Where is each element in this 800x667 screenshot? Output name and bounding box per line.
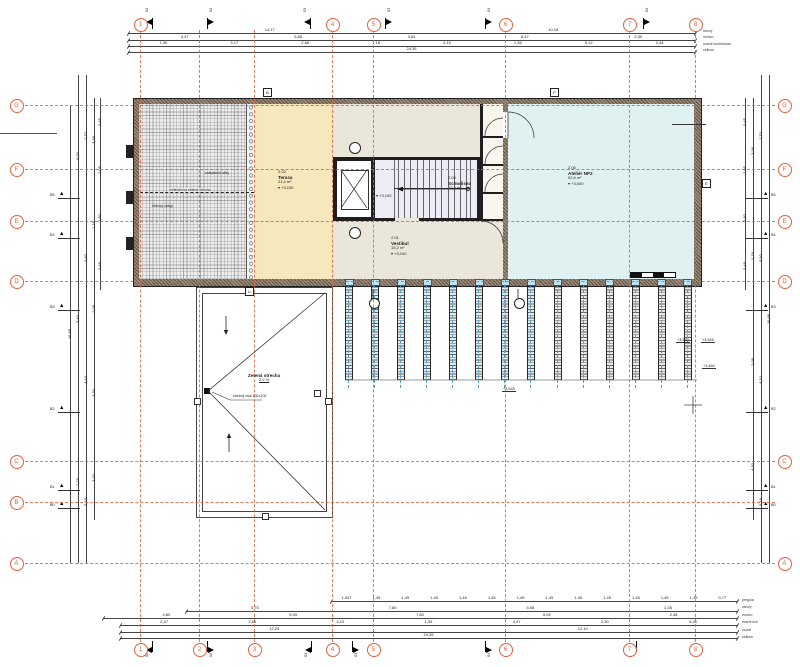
section-flag-pole-top-0 bbox=[152, 18, 153, 29]
wall-mark-b: b bbox=[245, 287, 254, 296]
grid-bubble-left-C: C bbox=[10, 455, 24, 469]
grid-bubble-left-B: B bbox=[10, 496, 24, 510]
section-flag-pennant bbox=[304, 19, 310, 25]
b-marker-label-left: B2 bbox=[50, 407, 55, 411]
dim-value: 7,26 bbox=[76, 478, 80, 486]
grid-line-column-4 bbox=[332, 30, 333, 652]
section-flag-label: S4 bbox=[487, 653, 491, 657]
b-marker-tri-right: ▲ bbox=[763, 405, 768, 411]
dim-value: 0,48 bbox=[98, 262, 102, 270]
grid-bubble-bottom-4: 4 bbox=[326, 643, 340, 657]
dim-legend-top-1: murivo bbox=[703, 36, 714, 40]
hatch-label-3: štrkový zásyp bbox=[152, 204, 173, 208]
grid-line-row-G bbox=[25, 105, 775, 106]
dim-value: 2,95 bbox=[743, 166, 747, 174]
b-marker-label-left: B1 bbox=[50, 485, 55, 489]
dim-value: 5,90 bbox=[759, 254, 763, 262]
b-marker-label-right: B2 bbox=[771, 407, 776, 411]
pergola-axis-11 bbox=[635, 285, 636, 388]
flat-roof-inner bbox=[202, 293, 327, 512]
dim-value: 14,17 bbox=[265, 28, 275, 32]
dim-value: 4,47 bbox=[513, 620, 521, 624]
section-flag-pole-bottom-0 bbox=[152, 641, 153, 652]
section-flag-pole-bottom-2 bbox=[311, 641, 312, 652]
grid-bubble-left-G: G bbox=[10, 99, 24, 113]
roof-anchor-square-1 bbox=[325, 398, 332, 405]
window-tick-5 bbox=[475, 279, 484, 286]
facade-stub-1 bbox=[126, 145, 134, 158]
dim-value: 6,20 bbox=[76, 152, 80, 160]
grid-bubble-bottom-8: 8 bbox=[689, 643, 703, 657]
pergola-axis-10 bbox=[609, 285, 610, 388]
hatch-label-1: zateplenie átiky bbox=[205, 171, 229, 175]
pergola-strip-5 bbox=[475, 287, 483, 380]
pergola-axis-5 bbox=[478, 285, 479, 388]
stair-level-mark: ▾ +3,100 bbox=[376, 194, 391, 199]
grid-bubble-top-6: 6 bbox=[499, 18, 513, 32]
b-marker-label-right: B0 bbox=[771, 503, 776, 507]
grid-line-column-5 bbox=[373, 30, 374, 652]
b-marker-label-right: B1 bbox=[771, 485, 776, 489]
window-tick-10 bbox=[605, 279, 614, 286]
pergola-axis-12 bbox=[661, 285, 662, 388]
dim-value: 6,47 bbox=[521, 35, 529, 39]
dim-value: 4,10 bbox=[443, 41, 451, 45]
window-tick-2 bbox=[397, 279, 406, 286]
detail-circle-top bbox=[349, 142, 361, 154]
grid-bubble-right-C: C bbox=[778, 455, 792, 469]
dim-value: 1,45 bbox=[661, 596, 669, 600]
dim-value: 4,10 bbox=[759, 376, 763, 384]
grid-bubble-left-E: E bbox=[10, 215, 24, 229]
dim-legend-bottom-5: celkom bbox=[742, 636, 753, 640]
dim-value: 2,47 bbox=[160, 620, 168, 624]
section-flag-label: S4 bbox=[645, 8, 649, 12]
room-label-roof: Zelená strecha 2,0 % bbox=[248, 373, 280, 383]
studio-room bbox=[508, 104, 694, 279]
downpipe-circle-1 bbox=[369, 298, 380, 309]
pergola-axis-9 bbox=[583, 285, 584, 388]
b-marker-line-right bbox=[746, 508, 768, 509]
spot-level-2: +3,460 bbox=[702, 364, 716, 369]
grid-line-row-F bbox=[25, 169, 775, 170]
dim-value: 1,45 bbox=[574, 596, 582, 600]
grid-bubble-left-F: F bbox=[10, 163, 24, 177]
downpipe-circle-2 bbox=[514, 298, 525, 309]
section-flag-pole-top-2 bbox=[310, 18, 311, 29]
b-marker-tri-left: ▲ bbox=[59, 303, 64, 309]
dim-value: 1,70 bbox=[759, 132, 763, 140]
spot-level-1: +3,545 bbox=[701, 338, 715, 343]
b-marker-tri-right: ▲ bbox=[763, 191, 768, 197]
b-marker-line-left bbox=[58, 310, 80, 311]
b-marker-line-left bbox=[58, 238, 80, 239]
grid-bubble-top-1: 1 bbox=[134, 18, 148, 32]
window-tick-12 bbox=[657, 279, 666, 286]
grid-bubble-bottom-5: 5 bbox=[367, 643, 381, 657]
room-label-terrace: 2.02 Terasa 21,4 m² ▾ +3,100 bbox=[278, 170, 293, 190]
section-flag-pennant bbox=[386, 19, 392, 25]
grid-line-row-B bbox=[25, 502, 775, 503]
dim-value: 1,45 bbox=[459, 596, 467, 600]
dim-chain-h-9 bbox=[120, 638, 737, 639]
dim-value: 4,30 bbox=[92, 389, 96, 397]
section-flag-label: S3 bbox=[354, 653, 358, 657]
roof-anchor-square-0 bbox=[194, 398, 201, 405]
grid-line-row-C bbox=[25, 461, 775, 462]
dim-value: 1,35 bbox=[425, 620, 433, 624]
dim-value: 0,45 bbox=[98, 118, 102, 126]
pergola-strip-3 bbox=[423, 287, 431, 380]
floor-plan-sheet: 2.02 Terasa 21,4 m² ▾ +3,100 2.04 Schodi… bbox=[0, 0, 800, 667]
dim-value: 3,17 bbox=[230, 41, 238, 45]
window-tick-0 bbox=[345, 279, 354, 286]
dim-value: 2,48 bbox=[670, 613, 678, 617]
b-marker-label-left: B0 bbox=[50, 503, 55, 507]
grid-bubble-bottom-6: 6 bbox=[499, 643, 513, 657]
dim-legend-top-0: otvory bbox=[703, 30, 713, 34]
dim-value: 1,45 bbox=[546, 596, 554, 600]
facade-stub-3 bbox=[126, 237, 134, 250]
grid-bubble-bottom-3: 3 bbox=[248, 643, 262, 657]
dim-value: 4,10 bbox=[84, 376, 88, 384]
dim-value: 5,05 bbox=[543, 613, 551, 617]
dim-value: 5,05 bbox=[289, 613, 297, 617]
pergola-axis-4 bbox=[452, 285, 453, 388]
dim-values-h-1: 4,475,863,846,473,30 bbox=[128, 35, 695, 39]
section-flag-pennant bbox=[208, 19, 214, 25]
pergola-strip-4 bbox=[449, 287, 457, 380]
dim-value: 2,08 bbox=[92, 305, 96, 313]
grid-bubble-bottom-7: 7 bbox=[623, 643, 637, 657]
spot-level-3: +3,545 bbox=[502, 387, 516, 392]
dim-value: 10,18 bbox=[548, 28, 558, 32]
grid-line-row-D bbox=[25, 281, 775, 282]
window-tick-11 bbox=[631, 279, 640, 286]
grid-bubble-top-5: 5 bbox=[367, 18, 381, 32]
dim-value: 1,35 bbox=[514, 41, 522, 45]
dim-value: 4,30 bbox=[751, 463, 755, 471]
b-marker-line-left bbox=[58, 490, 80, 491]
b-marker-tri-right: ▲ bbox=[763, 483, 768, 489]
pergola-strip-10 bbox=[606, 287, 614, 380]
dim-chain-h-3 bbox=[128, 52, 695, 53]
dim-chain-h-4 bbox=[331, 601, 737, 602]
dim-value: 1,70 bbox=[84, 132, 88, 140]
dim-value: 24,35 bbox=[406, 47, 416, 51]
dim-values-h-7: 2,472,664,101,354,472,304,20 bbox=[120, 620, 737, 624]
grid-bubble-left-A: A bbox=[10, 557, 24, 571]
dim-value: 2,95 bbox=[98, 166, 102, 174]
dim-values-h-0: 14,1710,18 bbox=[128, 28, 695, 32]
pergola-strip-2 bbox=[397, 287, 405, 380]
dim-values-h-5: 5,757,805,552,35 bbox=[186, 606, 737, 610]
window-tick-1 bbox=[371, 279, 380, 286]
dim-legend-bottom-1: otvory bbox=[742, 606, 752, 610]
b-marker-line-right bbox=[746, 310, 768, 311]
dim-value: 2,35 bbox=[664, 606, 672, 610]
scale-bar bbox=[630, 272, 676, 278]
section-flag-label: S3 bbox=[304, 653, 308, 657]
dim-value: 0,77 bbox=[719, 596, 727, 600]
right-wall-tick bbox=[672, 124, 706, 125]
dim-legend-bottom-3: nosné kce bbox=[742, 621, 758, 625]
window-tick-13 bbox=[683, 279, 692, 286]
pergola-strip-11 bbox=[632, 287, 640, 380]
dim-legend-bottom-2: murivo bbox=[742, 614, 753, 618]
dim-value: 1,45 bbox=[690, 596, 698, 600]
dim-values-h-3: 24,35 bbox=[128, 47, 695, 51]
elevator-car bbox=[341, 170, 369, 210]
dim-value: 0,48 bbox=[743, 262, 747, 270]
grid-bubble-left-D: D bbox=[10, 275, 24, 289]
window-tick-3 bbox=[423, 279, 432, 286]
dim-value: 3,40 bbox=[76, 315, 80, 323]
small-room-divider-2 bbox=[483, 164, 503, 166]
dim-value: 4,80 bbox=[163, 613, 171, 617]
detail-circle-bottom bbox=[349, 227, 361, 239]
dim-values-h-9: 24,35 bbox=[120, 633, 737, 637]
wall-mark-e: E bbox=[702, 179, 711, 188]
room-label-studio: 2.05 Ateliér NP2 92,6 m² ▾ +3,000 bbox=[568, 166, 593, 186]
grid-bubble-top-7: 7 bbox=[623, 18, 637, 32]
spot-level-0: +3,545 bbox=[676, 338, 690, 343]
grid-bubble-right-D: D bbox=[778, 275, 792, 289]
dim-value: 3,30 bbox=[634, 35, 642, 39]
dim-legend-bottom-0: pergola bbox=[742, 599, 754, 603]
dim-value: 5,55 bbox=[526, 606, 534, 610]
grid-line-column-2 bbox=[199, 30, 200, 652]
dim-value: 1,547 bbox=[342, 596, 352, 600]
dim-chain-h-7 bbox=[120, 625, 737, 626]
pergola-strip-7 bbox=[527, 287, 535, 380]
facade-stub-2 bbox=[126, 191, 134, 204]
grid-line-row-E bbox=[25, 221, 775, 222]
dim-values-h-4: 1,5471,451,451,451,451,451,451,451,451,4… bbox=[331, 596, 737, 600]
pergola-axis-2 bbox=[400, 285, 401, 388]
dim-value: 7,80 bbox=[416, 613, 424, 617]
window-tick-4 bbox=[449, 279, 458, 286]
roof-anchor-square-3 bbox=[314, 390, 321, 397]
grid-bubble-right-A: A bbox=[778, 557, 792, 571]
section-flag-label: S4 bbox=[487, 8, 491, 12]
dim-value: 3,40 bbox=[92, 474, 96, 482]
small-room-divider-3 bbox=[483, 192, 503, 194]
section-flag-label: S3 bbox=[303, 8, 307, 12]
grid-bubble-bottom-2: 2 bbox=[193, 643, 207, 657]
window-tick-7 bbox=[527, 279, 536, 286]
b-marker-line-left bbox=[58, 412, 80, 413]
dim-value: 1,45 bbox=[488, 596, 496, 600]
dim-value: 2,66 bbox=[301, 41, 309, 45]
dim-value: 12,10 bbox=[578, 627, 588, 631]
b-marker-tri-right: ▲ bbox=[763, 303, 768, 309]
dim-value: 24,35 bbox=[423, 633, 433, 637]
section-flag-label: S3 bbox=[387, 8, 391, 12]
left-leader-line bbox=[0, 133, 57, 134]
pergola-axis-7 bbox=[530, 285, 531, 388]
room-label-vestibule: 2.01 Vestibul 15,2 m² ▾ +3,100 bbox=[391, 236, 409, 256]
grid-line-column-6 bbox=[505, 30, 506, 652]
section-flag-pennant bbox=[644, 19, 650, 25]
terrace-room bbox=[254, 104, 333, 279]
pergola-axis-8 bbox=[557, 285, 558, 388]
dim-value: 1,45 bbox=[632, 596, 640, 600]
small-room-divider-1 bbox=[483, 136, 503, 138]
dim-legend-top-3: celkom bbox=[703, 49, 714, 53]
dim-values-h-2: 1,303,172,661,184,101,355,122,44 bbox=[128, 41, 695, 45]
b-marker-label-left: B4 bbox=[50, 233, 55, 237]
wall-mark-b: B bbox=[263, 88, 272, 97]
section-flag-label: S2 bbox=[209, 653, 213, 657]
dim-value: 4,10 bbox=[336, 620, 344, 624]
dim-value: 3,38 bbox=[751, 147, 755, 155]
grid-bubble-top-4: 4 bbox=[326, 18, 340, 32]
grid-line-column-1 bbox=[140, 30, 141, 652]
b-marker-tri-left: ▲ bbox=[59, 405, 64, 411]
dim-value: 1,30 bbox=[160, 41, 168, 45]
dim-value: 2,30 bbox=[601, 620, 609, 624]
small-rooms bbox=[483, 104, 503, 221]
roof-anchor-square-2 bbox=[262, 513, 269, 520]
dim-value: 5,12 bbox=[585, 41, 593, 45]
section-flag-label: S2 bbox=[209, 8, 213, 12]
dim-value: 2,44 bbox=[656, 41, 664, 45]
window-tick-8 bbox=[553, 279, 562, 286]
room-label-stair: 2.04 Schodisko 12,8 m² bbox=[448, 176, 471, 191]
grid-line-row-A bbox=[25, 563, 775, 564]
pergola-strip-12 bbox=[658, 287, 666, 380]
b-marker-tri-left: ▲ bbox=[59, 483, 64, 489]
grid-line-column-3 bbox=[254, 30, 255, 652]
dim-legend-bottom-4: osové bbox=[742, 629, 751, 633]
dim-value: 1,45 bbox=[401, 596, 409, 600]
dim-value: 12,25 bbox=[269, 627, 279, 631]
b-marker-label-right: B4 bbox=[771, 233, 776, 237]
b-marker-label-right: B3 bbox=[771, 305, 776, 309]
section-flag-label: S2 bbox=[145, 8, 149, 12]
dim-value: 0,45 bbox=[743, 118, 747, 126]
pergola-strip-13 bbox=[684, 287, 692, 380]
dim-value: 4,47 bbox=[181, 35, 189, 39]
dim-value: 3,84 bbox=[408, 35, 416, 39]
pergola-axis-13 bbox=[687, 285, 688, 388]
grid-bubble-right-G: G bbox=[778, 99, 792, 113]
dim-value: 16,86 bbox=[767, 314, 771, 324]
grid-line-column-7 bbox=[629, 30, 630, 652]
roof-drain-label: strešný vtok 100×100 bbox=[233, 394, 266, 398]
b-marker-line-right bbox=[746, 490, 768, 491]
dim-value: 1,45 bbox=[517, 596, 525, 600]
b-marker-line-right bbox=[746, 412, 768, 413]
dim-value: 1,45 bbox=[603, 596, 611, 600]
dim-values-h-8: 12,2512,10 bbox=[120, 627, 737, 631]
dim-values-v-left-4: 0,452,951,800,48 bbox=[95, 98, 105, 290]
b-marker-label-left: B5 bbox=[50, 193, 55, 197]
pergola-strip-9 bbox=[580, 287, 588, 380]
dim-chain-h-5 bbox=[186, 611, 737, 612]
b-marker-line-left bbox=[58, 508, 80, 509]
roof-drain bbox=[204, 388, 210, 394]
b-marker-tri-left: ▲ bbox=[59, 231, 64, 237]
dim-value: 16,86 bbox=[68, 329, 72, 339]
pergola-axis-0 bbox=[348, 285, 349, 388]
dim-value: 1,76 bbox=[751, 252, 755, 260]
pergola-axis-3 bbox=[426, 285, 427, 388]
b-marker-line-left bbox=[58, 198, 80, 199]
hatch-label-2: extenzívna zelená strecha bbox=[170, 188, 211, 192]
dim-value: 1,45 bbox=[430, 596, 438, 600]
grid-line-column-8 bbox=[695, 30, 696, 652]
b-marker-label-right: B5 bbox=[771, 193, 776, 197]
grid-bubble-bottom-1: 1 bbox=[134, 643, 148, 657]
b-marker-label-left: B3 bbox=[50, 305, 55, 309]
section-flag-pennant bbox=[486, 19, 492, 25]
dim-value: 2,08 bbox=[751, 358, 755, 366]
wall-mark-p: P bbox=[550, 88, 559, 97]
grid-bubble-right-E: E bbox=[778, 215, 792, 229]
b-marker-line-right bbox=[746, 198, 768, 199]
b-marker-tri-right: ▲ bbox=[763, 231, 768, 237]
pergola-strip-0 bbox=[345, 287, 353, 380]
dim-value: 7,80 bbox=[389, 606, 397, 610]
grid-bubble-top-8: 8 bbox=[689, 18, 703, 32]
dim-value: 5,90 bbox=[84, 254, 88, 262]
window-tick-9 bbox=[579, 279, 588, 286]
dim-value: 5,86 bbox=[294, 35, 302, 39]
dim-legend-top-2: nosné konštrukcie bbox=[703, 43, 731, 47]
grid-bubble-right-F: F bbox=[778, 163, 792, 177]
b-marker-line-right bbox=[746, 238, 768, 239]
b-marker-tri-left: ▲ bbox=[59, 191, 64, 197]
pergola-strip-8 bbox=[554, 287, 562, 380]
